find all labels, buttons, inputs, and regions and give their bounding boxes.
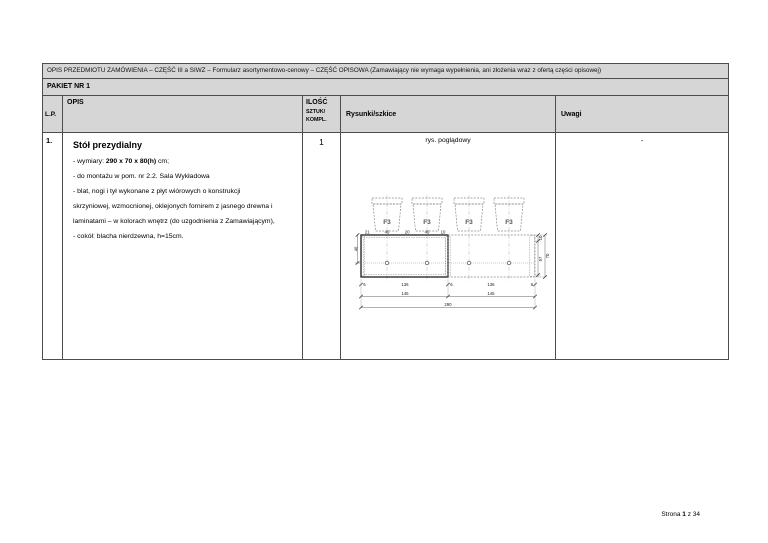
footer-prefix: Strona xyxy=(661,511,682,518)
dimension-text-prefix: - wymiary: xyxy=(73,158,106,165)
description-line: - cokół: blacha nierdzewna, h=15cm. xyxy=(73,233,294,248)
table-right-half xyxy=(448,235,535,277)
screw-marker xyxy=(467,261,471,265)
dim-label: 145 xyxy=(401,291,409,296)
table-left-half xyxy=(361,235,448,277)
table-technical-drawing: F3 F3 F3 F3 21 46 20 46 10 xyxy=(353,193,553,315)
column-header-lp: L.P. xyxy=(43,96,63,132)
table-header-row: L.P. OPIS ILOŚĆ SZTUK/ KOMPL. Rysunki/sz… xyxy=(43,96,728,133)
chair-label: F3 xyxy=(465,219,473,226)
description-line: - do montażu w pom. nr 2.2. Sala Wykłado… xyxy=(73,173,294,188)
dim-label: 21 xyxy=(365,229,370,234)
sketch-caption: rys. poglądowy xyxy=(341,133,555,144)
dim-label: 46 xyxy=(353,246,358,251)
dim-label: 145 xyxy=(487,291,495,296)
dim-label: 57 xyxy=(538,256,543,261)
order-description-table: OPIS PRZEDMIOTU ZAMÓWIENIA – CZĘŚĆ III a… xyxy=(42,63,729,360)
description-line: laminatami – w kolorach wnętrz (do uzgod… xyxy=(73,218,294,233)
dim-label: 10 xyxy=(538,235,543,240)
chair-label: F3 xyxy=(505,219,513,226)
footer-suffix: z 34 xyxy=(686,511,700,518)
screw-marker xyxy=(385,261,389,265)
item-title: Stół prezydialny xyxy=(73,140,294,150)
dim-label: 136 xyxy=(401,282,409,287)
column-header-ilosc: ILOŚĆ SZTUK/ KOMPL. xyxy=(303,96,341,132)
column-header-ilosc-line1: ILOŚĆ xyxy=(306,99,340,106)
description-line: skrzyniowej, wzmocnionej, oklejonych for… xyxy=(73,203,294,218)
document-title-bar: OPIS PRZEDMIOTU ZAMÓWIENIA – CZĘŚĆ III a… xyxy=(43,64,728,79)
sketch-cell: rys. poglądowy F3 F3 F3 F3 xyxy=(341,133,556,359)
dim-label: 46 xyxy=(385,229,390,234)
dim-label: 70 xyxy=(545,253,550,258)
dim-label: 136 xyxy=(487,282,495,287)
description-line: - wymiary: 290 x 70 x 80(h) cm; xyxy=(73,158,294,173)
dim-label: 10 xyxy=(441,229,446,234)
column-header-uwagi: Uwagi xyxy=(556,96,728,132)
description-line: - blat, nogi i tył wykonane z płyt wióro… xyxy=(73,188,294,203)
table-left-inner xyxy=(364,238,446,275)
remarks-cell: - xyxy=(556,133,728,359)
screw-marker xyxy=(507,261,511,265)
dim-label: 20 xyxy=(405,229,410,234)
packet-title-bar: PAKIET NR 1 xyxy=(43,79,728,96)
table-panel-right xyxy=(530,236,535,276)
description-cell: Stół prezydialny - wymiary: 290 x 70 x 8… xyxy=(63,133,303,359)
chair-label: F3 xyxy=(383,219,391,226)
dim-label: 290 xyxy=(444,302,452,307)
dim-label: 46 xyxy=(425,229,430,234)
dimension-text-suffix: cm; xyxy=(156,158,169,165)
dim-label: 6 xyxy=(450,282,453,287)
column-header-ilosc-line2: SZTUK/ xyxy=(306,109,340,115)
dimension-text-bold: 290 x 70 x 80(h) xyxy=(106,158,156,165)
dim-label: 6 xyxy=(363,282,366,287)
row-number-cell: 1. xyxy=(43,133,63,359)
column-header-rysunki: Rysunki/szkice xyxy=(341,96,556,132)
chair-label: F3 xyxy=(423,219,431,226)
screw-marker xyxy=(425,261,429,265)
column-header-ilosc-line3: KOMPL. xyxy=(306,117,340,123)
table-row: 1. Stół prezydialny - wymiary: 290 x 70 … xyxy=(43,133,728,359)
column-header-opis: OPIS xyxy=(63,96,303,132)
page-number-footer: Strona 1 z 34 xyxy=(0,511,700,518)
quantity-cell: 1 xyxy=(303,133,341,359)
